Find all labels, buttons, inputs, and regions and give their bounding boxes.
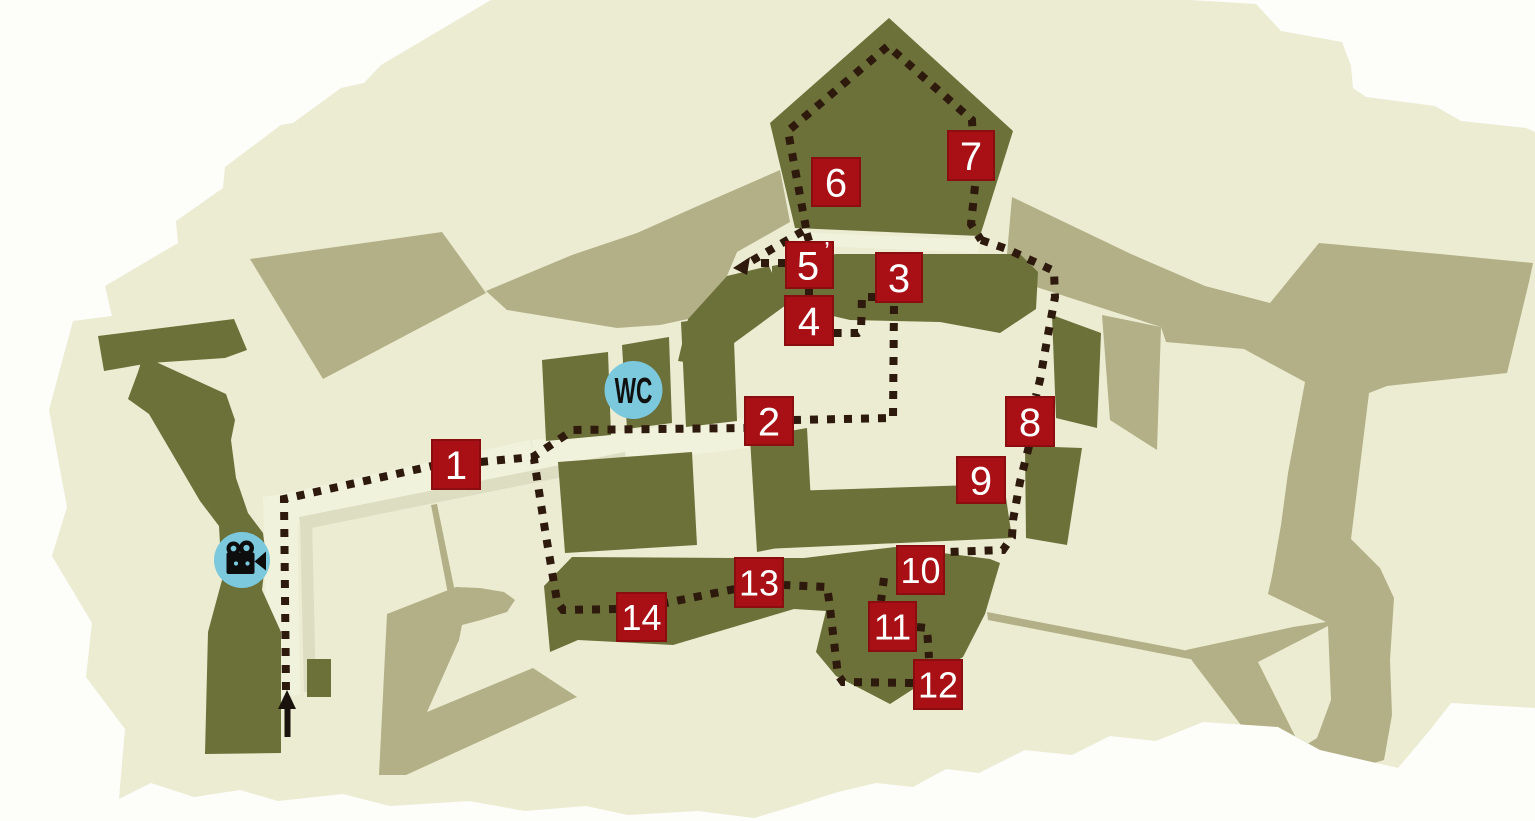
svg-text:7: 7 <box>960 135 982 179</box>
svg-text:3: 3 <box>888 257 910 301</box>
svg-text:12: 12 <box>918 665 958 706</box>
svg-text:1: 1 <box>445 444 467 488</box>
svg-text:5: 5 <box>797 245 819 289</box>
svg-text:10: 10 <box>900 550 940 591</box>
svg-text:8: 8 <box>1019 401 1041 445</box>
svg-text:2: 2 <box>758 401 780 445</box>
svg-text:13: 13 <box>739 563 779 604</box>
svg-text:6: 6 <box>825 162 847 206</box>
svg-text:9: 9 <box>970 460 992 504</box>
svg-text:’: ’ <box>824 236 830 266</box>
svg-text:11: 11 <box>874 607 911 648</box>
svg-text:4: 4 <box>798 300 820 344</box>
svg-text:14: 14 <box>621 597 661 638</box>
svg-text:WC: WC <box>615 372 653 411</box>
